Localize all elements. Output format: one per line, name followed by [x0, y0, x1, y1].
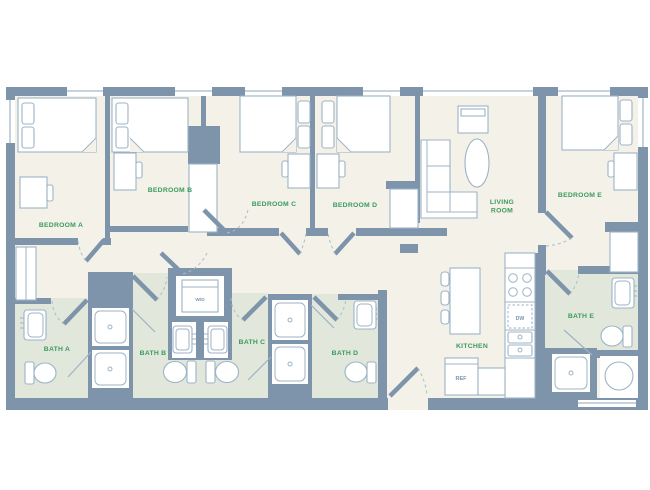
window-living-room — [423, 87, 533, 96]
toilet-icon — [345, 362, 376, 383]
stool-icon — [441, 291, 449, 305]
sink-icon — [354, 301, 379, 329]
toilet-icon — [206, 361, 239, 383]
window-bedroom-b — [175, 87, 212, 96]
bath-c-fixtures — [206, 361, 239, 383]
pillow-icon — [22, 103, 34, 124]
window-bedroom-a — [67, 87, 103, 96]
bath-b-label: BATH B — [140, 350, 167, 357]
bath-a-label: BATH A — [44, 346, 70, 353]
living-room-label-line2: ROOM — [491, 208, 513, 215]
pillow-icon — [298, 126, 310, 148]
pillow-icon — [116, 103, 128, 124]
sink-icon — [612, 278, 637, 308]
chair-icon — [339, 161, 345, 177]
chair-icon — [47, 185, 53, 201]
pillow-icon — [322, 101, 334, 123]
shower-icon — [92, 308, 129, 346]
stool-icon — [441, 310, 449, 324]
coffee-table-icon — [465, 139, 489, 187]
bedroom-b-label: BEDROOM B — [148, 187, 193, 194]
living-room-label-line1: LIVING — [490, 199, 514, 206]
kitchen-label: KITCHEN — [456, 343, 488, 350]
bed-icon — [112, 98, 188, 152]
refrigerator-icon: REF — [445, 358, 478, 395]
bedroom-e-label: BEDROOM E — [558, 192, 602, 199]
bedroom-a-label: BEDROOM A — [39, 222, 83, 229]
chair-icon — [136, 162, 142, 178]
bath-c-label: BATH C — [239, 339, 266, 346]
window-bedroom-e — [558, 87, 610, 96]
refrigerator-label: REF — [456, 376, 468, 382]
pillow-icon — [22, 127, 34, 148]
bath-d-label: BATH D — [332, 350, 359, 357]
window-left-wall — [6, 100, 15, 143]
toilet-icon — [164, 361, 197, 383]
bath-b-fixtures — [164, 361, 197, 383]
bed-icon — [18, 98, 96, 152]
island-icon — [441, 268, 480, 334]
shower-icon — [552, 354, 590, 392]
laundry-closet: W/D — [176, 276, 224, 316]
toilet-icon — [25, 362, 56, 384]
entry-opening — [388, 398, 428, 410]
sink-icon — [20, 310, 46, 340]
dishwasher-icon: DW — [508, 305, 532, 328]
window-right-wall — [638, 98, 648, 147]
kitchen-counter — [478, 368, 505, 395]
closet-icon — [390, 189, 418, 228]
pillow-icon — [322, 126, 334, 148]
bath-c-sink-icon — [204, 326, 227, 353]
floor-plan: W/D — [0, 0, 650, 490]
pillow-icon — [116, 127, 128, 148]
dishwasher-label: DW — [516, 316, 525, 322]
toilet-icon — [601, 326, 632, 347]
shower-icon — [272, 344, 308, 384]
pillow-icon — [620, 100, 632, 121]
window-bedroom-c — [245, 87, 282, 96]
pillow-icon — [298, 101, 310, 123]
bath-b-sink-icon — [173, 326, 196, 353]
washer-dryer-label: W/D — [195, 297, 205, 303]
chair-icon — [282, 161, 288, 177]
water-heater-icon — [600, 356, 638, 398]
chair-icon — [608, 161, 614, 177]
window-bedroom-d — [363, 87, 400, 96]
bedroom-d-label: BEDROOM D — [333, 202, 378, 209]
tv-stand-icon — [458, 106, 488, 133]
shower-icon — [272, 300, 308, 340]
bath-e-label: BATH E — [568, 313, 595, 320]
shower-icon — [92, 350, 129, 388]
bedroom-c-label: BEDROOM C — [252, 201, 297, 208]
stool-icon — [441, 272, 449, 286]
vent-bottom-wall — [578, 400, 636, 407]
pillow-icon — [620, 124, 632, 145]
washer-dryer-icon — [182, 280, 218, 312]
closet-icon — [610, 232, 638, 272]
